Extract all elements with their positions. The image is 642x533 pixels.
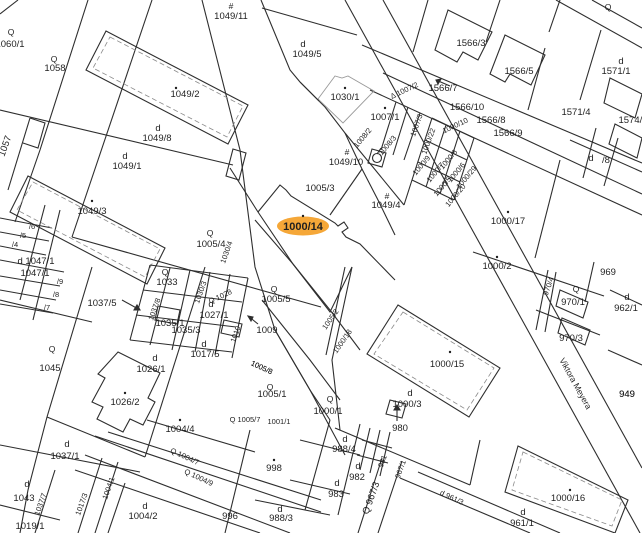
svg-text:d: d — [624, 292, 629, 303]
svg-text:1000/2: 1000/2 — [482, 261, 511, 272]
svg-text:1019/1: 1019/1 — [15, 521, 44, 532]
svg-text:1000/17: 1000/17 — [491, 216, 525, 227]
svg-text:d: d — [520, 507, 525, 518]
svg-text:1037/5: 1037/5 — [87, 298, 116, 309]
svg-text:1571/4: 1571/4 — [561, 107, 590, 118]
svg-text:1049/2: 1049/2 — [170, 89, 199, 100]
svg-text:1001/1: 1001/1 — [268, 417, 291, 426]
svg-text:1017/5: 1017/5 — [190, 349, 219, 360]
svg-text:970/3: 970/3 — [559, 333, 583, 344]
svg-text:d: d — [24, 479, 29, 490]
svg-text:Q: Q — [207, 228, 214, 238]
svg-text:996: 996 — [222, 511, 238, 522]
svg-text:970/1: 970/1 — [561, 297, 585, 308]
svg-text:1060/1: 1060/1 — [0, 39, 25, 50]
svg-text:1574/1: 1574/1 — [618, 115, 642, 126]
svg-text:1566/9: 1566/9 — [493, 128, 522, 139]
svg-text:/7: /7 — [44, 303, 50, 312]
svg-text:1049/11: 1049/11 — [214, 11, 248, 22]
svg-text:1047/1: 1047/1 — [20, 268, 49, 279]
svg-text:1026/1: 1026/1 — [136, 364, 165, 375]
svg-text:/8: /8 — [602, 155, 610, 166]
svg-text:d 1047/1: d 1047/1 — [18, 256, 55, 267]
svg-text:1566/5: 1566/5 — [504, 66, 533, 77]
svg-text:1049/8: 1049/8 — [142, 133, 171, 144]
svg-text:1035/3: 1035/3 — [171, 325, 200, 336]
svg-text:1005/1: 1005/1 — [257, 389, 286, 400]
svg-text:/5: /5 — [20, 231, 26, 240]
svg-text:1049/3: 1049/3 — [77, 206, 106, 217]
svg-text:1026/2: 1026/2 — [110, 397, 139, 408]
svg-text:d: d — [588, 153, 593, 164]
svg-text:1037/1: 1037/1 — [50, 451, 79, 462]
svg-text:1030/1: 1030/1 — [330, 92, 359, 103]
svg-text:1007/1: 1007/1 — [370, 112, 399, 123]
svg-text:1045: 1045 — [39, 363, 60, 374]
svg-text:988/3: 988/3 — [269, 513, 293, 524]
svg-text:Q: Q — [573, 284, 580, 294]
svg-text:1004/2: 1004/2 — [128, 511, 157, 522]
svg-text:1033: 1033 — [156, 277, 177, 288]
svg-text:Q: Q — [162, 267, 169, 277]
svg-text:Q: Q — [8, 27, 15, 37]
svg-text:1049/4: 1049/4 — [371, 200, 400, 211]
svg-text:Q 1005/7: Q 1005/7 — [230, 415, 261, 424]
svg-text:1566/8: 1566/8 — [476, 115, 505, 126]
svg-text:1005/3: 1005/3 — [305, 183, 334, 194]
svg-text:1049/10: 1049/10 — [329, 157, 363, 168]
svg-text:Q: Q — [49, 344, 56, 354]
svg-text:1005/4: 1005/4 — [196, 239, 225, 250]
svg-text:1566/3: 1566/3 — [456, 38, 485, 49]
svg-text:1027/1: 1027/1 — [199, 310, 228, 321]
svg-text:1049/5: 1049/5 — [292, 49, 321, 60]
svg-text:Q: Q — [605, 2, 612, 12]
svg-text:d: d — [64, 439, 69, 450]
svg-text:982: 982 — [349, 472, 365, 483]
svg-text:1000/16: 1000/16 — [551, 493, 585, 504]
svg-text:1571/1: 1571/1 — [601, 66, 630, 77]
svg-text:Q: Q — [327, 394, 334, 404]
svg-text:Q: Q — [271, 284, 278, 294]
svg-text:/9: /9 — [57, 277, 63, 286]
svg-text:1049/1: 1049/1 — [112, 161, 141, 172]
svg-text:1000/15: 1000/15 — [430, 359, 464, 370]
svg-text:#: # — [229, 1, 234, 11]
svg-text:988/4: 988/4 — [332, 444, 356, 455]
svg-text:d: d — [334, 478, 339, 489]
svg-text:#: # — [345, 147, 350, 157]
svg-text:980: 980 — [392, 423, 408, 434]
svg-text:/8: /8 — [53, 290, 59, 299]
svg-text:1058: 1058 — [44, 63, 65, 74]
svg-text:1000/14: 1000/14 — [283, 221, 324, 233]
svg-text:998: 998 — [266, 463, 282, 474]
svg-text:d: d — [407, 388, 412, 399]
svg-text:969: 969 — [600, 267, 616, 278]
svg-text:/6: /6 — [29, 222, 35, 231]
svg-text:1000/1: 1000/1 — [313, 406, 342, 417]
svg-text:d: d — [152, 353, 157, 364]
svg-text:d: d — [355, 461, 360, 472]
svg-text:1009: 1009 — [256, 325, 277, 336]
svg-text:949: 949 — [619, 389, 635, 400]
svg-text:/4: /4 — [12, 240, 18, 249]
svg-text:1566/7: 1566/7 — [428, 83, 457, 94]
svg-text:962/1: 962/1 — [614, 303, 638, 314]
svg-text:1566/10: 1566/10 — [450, 102, 484, 113]
svg-text:1005/5: 1005/5 — [261, 294, 290, 305]
svg-text:983: 983 — [328, 489, 344, 500]
svg-text:1004/4: 1004/4 — [165, 424, 194, 435]
svg-text:961/1: 961/1 — [510, 518, 534, 529]
svg-text:1043: 1043 — [13, 493, 34, 504]
